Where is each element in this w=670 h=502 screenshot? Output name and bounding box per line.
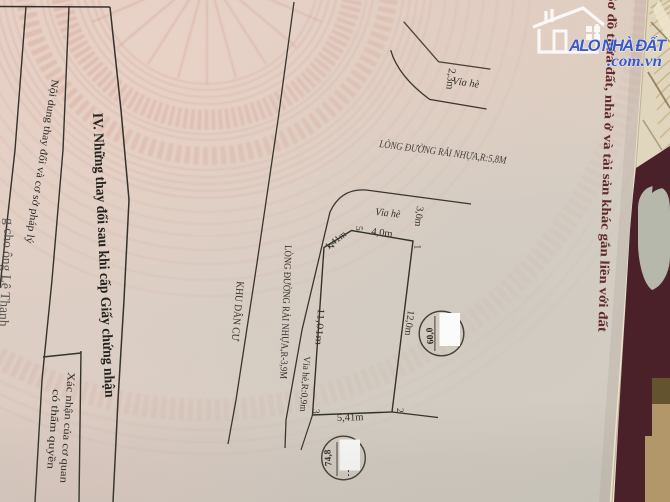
svg-text:3,0m: 3,0m [412,206,425,228]
svg-text:1: 1 [412,245,422,250]
svg-text:60,0: 60,0 [425,327,436,345]
svg-text:.com.vn: .com.vn [607,53,662,70]
svg-text:5: 5 [353,226,363,231]
svg-text:4: 4 [325,243,335,248]
